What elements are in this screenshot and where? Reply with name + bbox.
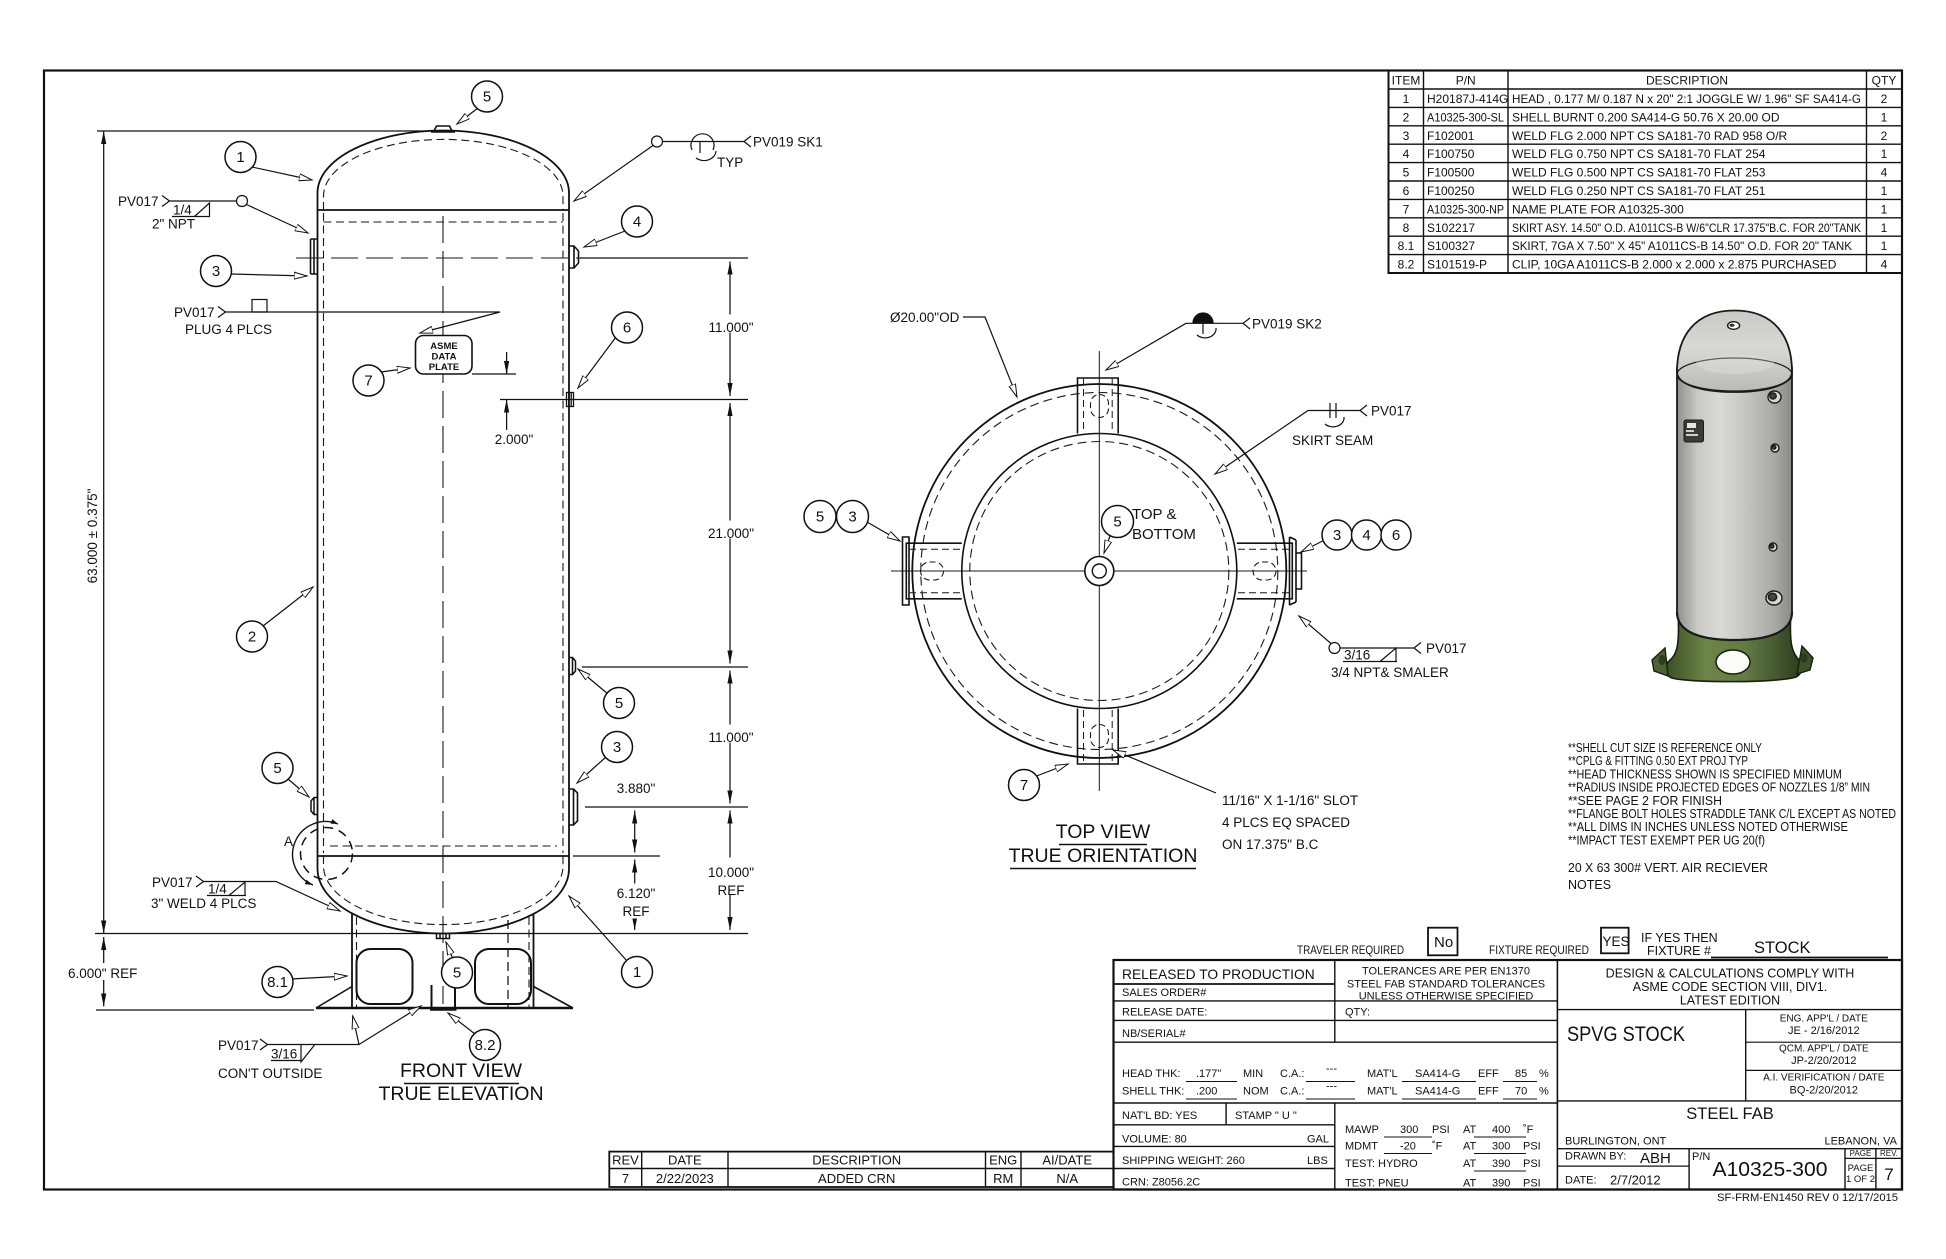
svg-text:MAT'L: MAT'L: [1367, 1068, 1398, 1080]
svg-text:S102217: S102217: [1427, 221, 1475, 235]
svg-text:6: 6: [1392, 527, 1400, 544]
svg-text:1 OF 2: 1 OF 2: [1846, 1174, 1875, 1185]
svg-text:**SEE PAGE 2 FOR FINISH: **SEE PAGE 2 FOR FINISH: [1568, 794, 1722, 808]
svg-text:70: 70: [1515, 1086, 1527, 1098]
svg-text:VOLUME: 80: VOLUME: 80: [1122, 1134, 1187, 1146]
svg-text:2: 2: [1881, 92, 1888, 106]
svg-text:300: 300: [1492, 1141, 1510, 1153]
svg-text:1/4: 1/4: [208, 882, 227, 897]
svg-text:SA414-G: SA414-G: [1415, 1086, 1460, 1098]
svg-text:PV019 SK1: PV019 SK1: [753, 135, 823, 150]
svg-text:NAT'L BD: YES: NAT'L BD: YES: [1122, 1110, 1197, 1122]
svg-text:S101519-P: S101519-P: [1427, 258, 1487, 272]
svg-text:PLUG 4 PLCS: PLUG 4 PLCS: [185, 322, 272, 337]
svg-text:11.000": 11.000": [708, 730, 753, 745]
svg-text:No: No: [1434, 934, 1453, 951]
svg-text:4: 4: [633, 214, 641, 231]
svg-text:REF: REF: [718, 883, 745, 898]
svg-text:SPVG STOCK: SPVG STOCK: [1567, 1023, 1685, 1046]
svg-text:**RADIUS INSIDE PROJECTED EDGE: **RADIUS INSIDE PROJECTED EDGES OF NOZZL…: [1568, 781, 1870, 795]
svg-text:ABH: ABH: [1640, 1150, 1671, 1167]
svg-text:SHELL BURNT 0.200 SA414-G 50.7: SHELL BURNT 0.200 SA414-G 50.76 X 20.00 …: [1512, 110, 1780, 124]
svg-text:SHELL THK:: SHELL THK:: [1122, 1086, 1184, 1098]
svg-text:N/A: N/A: [1056, 1171, 1078, 1186]
svg-text:390: 390: [1492, 1178, 1510, 1190]
svg-text:3: 3: [212, 263, 220, 280]
svg-text:TRUE ELEVATION: TRUE ELEVATION: [378, 1083, 543, 1105]
svg-text:**CPLG & FITTING 0.50 EXT PROJ: **CPLG & FITTING 0.50 EXT PROJ TYP: [1568, 754, 1748, 768]
svg-text:.177": .177": [1196, 1068, 1221, 1080]
svg-text:FRONT VIEW: FRONT VIEW: [400, 1060, 523, 1082]
svg-text:NOTES: NOTES: [1568, 878, 1611, 892]
svg-text:6: 6: [623, 320, 631, 337]
svg-text:CLIP, 10GA A1011CS-B 2.000 x 2: CLIP, 10GA A1011CS-B 2.000 x 2.000 x 2.8…: [1512, 258, 1837, 272]
svg-text:7: 7: [1403, 202, 1410, 216]
svg-text:4: 4: [1362, 527, 1370, 544]
svg-text:7: 7: [1020, 777, 1028, 794]
svg-text:3: 3: [1403, 129, 1410, 143]
svg-text:F100500: F100500: [1427, 166, 1475, 180]
svg-text:MAT'L: MAT'L: [1367, 1086, 1398, 1098]
svg-text:GAL: GAL: [1307, 1134, 1329, 1146]
svg-text:F100750: F100750: [1427, 147, 1475, 161]
svg-text:A.I. VERIFICATION / DATE: A.I. VERIFICATION / DATE: [1763, 1073, 1885, 1084]
svg-text:PV017: PV017: [174, 305, 215, 320]
svg-text:IF YES THEN: IF YES THEN: [1641, 931, 1718, 945]
svg-text:8.1: 8.1: [267, 974, 288, 991]
svg-text:LATEST EDITION: LATEST EDITION: [1680, 994, 1780, 1008]
svg-text:PLATE: PLATE: [429, 362, 459, 373]
svg-text:DESIGN & CALCULATIONS COMPLY W: DESIGN & CALCULATIONS COMPLY WITH: [1606, 967, 1855, 981]
svg-text:˚F: ˚F: [1432, 1141, 1443, 1153]
svg-text:3: 3: [613, 739, 621, 756]
svg-text:8.1: 8.1: [1398, 239, 1415, 253]
svg-text:10.000": 10.000": [708, 865, 754, 880]
svg-text:˚F: ˚F: [1523, 1124, 1534, 1136]
svg-text:**ALL DIMS IN INCHES UNLESS NO: **ALL DIMS IN INCHES UNLESS NOTED OTHERW…: [1568, 820, 1848, 834]
svg-text:85: 85: [1515, 1068, 1527, 1080]
svg-text:1: 1: [1881, 239, 1888, 253]
svg-text:SKIRT SEAM: SKIRT SEAM: [1292, 433, 1373, 448]
svg-text:ENG: ENG: [989, 1153, 1017, 1168]
svg-text:TOLERANCES ARE PER EN1370: TOLERANCES ARE PER EN1370: [1362, 966, 1530, 978]
svg-text:2.000": 2.000": [495, 432, 534, 447]
svg-text:STEEL FAB STANDARD TOLERANCES: STEEL FAB STANDARD TOLERANCES: [1347, 979, 1545, 991]
svg-text:MAWP: MAWP: [1345, 1124, 1379, 1136]
svg-text:ITEM: ITEM: [1392, 74, 1421, 88]
svg-text:1: 1: [1881, 221, 1888, 235]
svg-text:EFF: EFF: [1478, 1086, 1499, 1098]
svg-text:SA414-G: SA414-G: [1415, 1068, 1460, 1080]
svg-text:HEAD , 0.177 M/ 0.187 N x 20": HEAD , 0.177 M/ 0.187 N x 20" 2:1 JOGGLE…: [1512, 92, 1861, 106]
svg-text:3/16: 3/16: [1344, 648, 1370, 663]
svg-text:RELEASED TO PRODUCTION: RELEASED TO PRODUCTION: [1122, 967, 1315, 982]
svg-text:ENG. APP'L / DATE: ENG. APP'L / DATE: [1780, 1014, 1868, 1025]
svg-text:EFF: EFF: [1478, 1068, 1499, 1080]
svg-text:4: 4: [1881, 258, 1888, 272]
svg-text:RM: RM: [993, 1171, 1013, 1186]
svg-text:3.880": 3.880": [617, 781, 656, 796]
svg-text:PSI: PSI: [1523, 1158, 1541, 1170]
svg-text:21.000": 21.000": [708, 526, 754, 541]
svg-text:REV.: REV.: [1880, 1149, 1898, 1158]
svg-text:Ø20.00"OD: Ø20.00"OD: [890, 310, 960, 325]
svg-text:1: 1: [1881, 147, 1888, 161]
svg-text:F100250: F100250: [1427, 184, 1475, 198]
svg-text:2" NPT: 2" NPT: [152, 217, 195, 232]
svg-text:WELD FLG 0.250 NPT CS SA181-70: WELD FLG 0.250 NPT CS SA181-70 FLAT 251: [1512, 184, 1766, 198]
svg-text:AT: AT: [1463, 1141, 1477, 1153]
svg-text:YES: YES: [1603, 934, 1630, 949]
svg-text:C.A.:: C.A.:: [1280, 1068, 1304, 1080]
svg-text:%: %: [1539, 1086, 1549, 1098]
svg-text:UNLESS OTHERWISE SPECIFIED: UNLESS OTHERWISE SPECIFIED: [1359, 991, 1534, 1003]
svg-text:DESCRIPTION: DESCRIPTION: [1646, 74, 1728, 88]
svg-text:H20187J-414G: H20187J-414G: [1427, 92, 1508, 106]
svg-text:SF-FRM-EN1450 REV 0 12/17/201: SF-FRM-EN1450 REV 0 12/17/2015: [1717, 1192, 1898, 1204]
svg-text:DESCRIPTION: DESCRIPTION: [812, 1153, 901, 1168]
svg-text:3/16: 3/16: [271, 1047, 297, 1062]
svg-text:3: 3: [1333, 527, 1341, 544]
svg-text:WELD FLG 0.750 NPT CS SA181-70: WELD FLG 0.750 NPT CS SA181-70 FLAT 254: [1512, 147, 1766, 161]
svg-text:AT: AT: [1463, 1124, 1477, 1136]
svg-text:DRAWN BY:: DRAWN BY:: [1565, 1151, 1626, 1163]
svg-text:SHIPPING WEIGHT: 260: SHIPPING WEIGHT: 260: [1122, 1155, 1245, 1167]
svg-text:7: 7: [1884, 1165, 1893, 1184]
svg-text:PSI: PSI: [1523, 1141, 1541, 1153]
svg-text:390: 390: [1492, 1158, 1510, 1170]
svg-text:WELD FLG 2.000 NPT CS SA181-70: WELD FLG 2.000 NPT CS SA181-70 RAD 958 O…: [1512, 129, 1788, 143]
svg-text:7: 7: [364, 373, 372, 390]
svg-text:2/22/2023: 2/22/2023: [656, 1171, 714, 1186]
svg-text:A10325-300-SL: A10325-300-SL: [1427, 110, 1504, 124]
svg-text:5: 5: [615, 695, 623, 712]
svg-text:6.120": 6.120": [617, 886, 656, 901]
svg-text:2: 2: [1403, 110, 1410, 124]
svg-text:PV017: PV017: [1426, 641, 1467, 656]
svg-text:2/7/2012: 2/7/2012: [1610, 1173, 1661, 1188]
svg-text:A10325-300: A10325-300: [1713, 1158, 1828, 1181]
svg-text:DATA: DATA: [432, 352, 457, 363]
svg-text:F102001: F102001: [1427, 129, 1475, 143]
svg-text:DATE:: DATE:: [1565, 1175, 1597, 1187]
svg-text:REF: REF: [623, 904, 650, 919]
svg-text:1: 1: [236, 149, 244, 166]
svg-text:8.2: 8.2: [475, 1037, 496, 1054]
svg-text:PV019 SK2: PV019 SK2: [1252, 317, 1322, 332]
svg-text:NAME PLATE FOR A10325-300: NAME PLATE FOR A10325-300: [1512, 202, 1684, 216]
svg-text:3: 3: [848, 509, 856, 526]
svg-text:NOM: NOM: [1243, 1086, 1269, 1098]
svg-text:PV017: PV017: [118, 194, 159, 209]
svg-text:**HEAD THICKNESS SHOWN IS SPEC: **HEAD THICKNESS SHOWN IS SPECIFIED MINI…: [1568, 767, 1842, 781]
svg-text:TOP VIEW: TOP VIEW: [1056, 821, 1151, 843]
svg-text:SKIRT ASY. 14.50" O.D. A1011CS: SKIRT ASY. 14.50" O.D. A1011CS-B W/6"CLR…: [1512, 221, 1861, 235]
svg-text:2: 2: [248, 629, 256, 646]
svg-text:A10325-300-NP: A10325-300-NP: [1427, 202, 1504, 216]
svg-text:WELD FLG 0.500 NPT CS SA181-70: WELD FLG 0.500 NPT CS SA181-70 FLAT 253: [1512, 166, 1766, 180]
svg-text:PAGE: PAGE: [1848, 1163, 1874, 1174]
svg-text:CON'T OUTSIDE: CON'T OUTSIDE: [218, 1066, 322, 1081]
svg-text:SALES ORDER#: SALES ORDER#: [1122, 987, 1207, 999]
svg-text:AI/DATE: AI/DATE: [1042, 1153, 1092, 1168]
svg-text:---: ---: [1326, 1063, 1337, 1075]
svg-text:TEST: HYDRO: TEST: HYDRO: [1345, 1158, 1418, 1170]
svg-text:1: 1: [633, 964, 641, 981]
svg-text:7: 7: [622, 1171, 629, 1186]
svg-text:TRAVELER REQUIRED: TRAVELER REQUIRED: [1297, 943, 1404, 957]
svg-text:PV017: PV017: [218, 1038, 259, 1053]
svg-text:3/4 NPT& SMALER: 3/4 NPT& SMALER: [1331, 665, 1449, 680]
svg-text:1/4: 1/4: [173, 203, 192, 218]
svg-text:.200: .200: [1196, 1086, 1217, 1098]
svg-text:ADDED CRN: ADDED CRN: [818, 1171, 895, 1186]
svg-text:PAGE: PAGE: [1850, 1149, 1872, 1158]
svg-text:PSI: PSI: [1432, 1124, 1450, 1136]
svg-text:JP-2/20/2012: JP-2/20/2012: [1791, 1055, 1856, 1067]
svg-text:A: A: [284, 834, 293, 849]
svg-text:AT: AT: [1463, 1158, 1477, 1170]
svg-text:JE - 2/16/2012: JE - 2/16/2012: [1788, 1025, 1860, 1037]
svg-text:5: 5: [453, 965, 461, 982]
svg-text:BQ-2/20/2012: BQ-2/20/2012: [1790, 1085, 1859, 1097]
svg-text:11.000": 11.000": [708, 320, 753, 335]
svg-text:STEEL FAB: STEEL FAB: [1686, 1105, 1773, 1123]
svg-text:1: 1: [1403, 92, 1410, 106]
svg-text:ON 17.375" B.C: ON 17.375" B.C: [1222, 837, 1319, 852]
svg-text:2: 2: [1881, 129, 1888, 143]
svg-text:3" WELD 4 PLCS: 3" WELD 4 PLCS: [151, 896, 256, 911]
svg-text:S100327: S100327: [1427, 239, 1475, 253]
svg-text:QTY: QTY: [1872, 74, 1897, 88]
svg-text:STOCK: STOCK: [1754, 939, 1811, 957]
svg-text:5: 5: [273, 760, 281, 777]
svg-text:-20: -20: [1400, 1141, 1416, 1153]
svg-text:300: 300: [1400, 1124, 1418, 1136]
svg-text:4 PLCS EQ SPACED: 4 PLCS EQ SPACED: [1222, 815, 1350, 830]
svg-text:QTY:: QTY:: [1345, 1007, 1370, 1019]
svg-text:MIN: MIN: [1243, 1068, 1263, 1080]
svg-text:PV017: PV017: [152, 875, 193, 890]
svg-text:63.000 ± 0.375": 63.000 ± 0.375": [85, 488, 100, 583]
svg-text:6: 6: [1403, 184, 1410, 198]
svg-text:4: 4: [1881, 166, 1888, 180]
svg-text:400: 400: [1492, 1124, 1510, 1136]
svg-text:NB/SERIAL#: NB/SERIAL#: [1122, 1028, 1186, 1040]
svg-text:8: 8: [1403, 221, 1410, 235]
svg-text:LEBANON, VA: LEBANON, VA: [1824, 1136, 1897, 1148]
svg-text:C.A.:: C.A.:: [1280, 1086, 1304, 1098]
svg-text:MDMT: MDMT: [1345, 1141, 1378, 1153]
svg-text:TYP: TYP: [717, 155, 743, 170]
svg-text:FIXTURE #: FIXTURE #: [1647, 944, 1711, 958]
svg-text:8.2: 8.2: [1398, 258, 1415, 272]
svg-text:SKIRT, 7GA X 7.50" X 45" A1011: SKIRT, 7GA X 7.50" X 45" A1011CS-B 14.50…: [1512, 239, 1852, 253]
svg-text:ASME CODE SECTION VIII, DIV1.: ASME CODE SECTION VIII, DIV1.: [1633, 980, 1827, 994]
svg-text:1: 1: [1881, 202, 1888, 216]
svg-text:TOP &: TOP &: [1132, 506, 1176, 523]
svg-text:LBS: LBS: [1307, 1155, 1328, 1167]
svg-text:PV017: PV017: [1371, 404, 1412, 419]
svg-text:FIXTURE REQUIRED: FIXTURE REQUIRED: [1489, 943, 1589, 957]
svg-text:%: %: [1539, 1068, 1549, 1080]
svg-text:TRUE ORIENTATION: TRUE ORIENTATION: [1009, 845, 1198, 867]
svg-text:20 X 63 300# VERT. AIR RECIEVE: 20 X 63 300# VERT. AIR RECIEVER: [1568, 861, 1768, 875]
svg-text:1: 1: [1881, 110, 1888, 124]
svg-text:BURLINGTON, ONT: BURLINGTON, ONT: [1565, 1136, 1667, 1148]
svg-text:TEST: PNEU: TEST: PNEU: [1345, 1178, 1409, 1190]
svg-text:STAMP " U ": STAMP " U ": [1235, 1110, 1297, 1122]
svg-text:---: ---: [1326, 1081, 1337, 1093]
svg-text:P/N: P/N: [1692, 1151, 1710, 1163]
svg-text:ASME: ASME: [430, 341, 457, 352]
svg-text:**FLANGE BOLT HOLES STRADDLE T: **FLANGE BOLT HOLES STRADDLE TANK C/L EX…: [1568, 807, 1896, 821]
svg-text:6.000" REF: 6.000" REF: [68, 966, 137, 981]
svg-text:11/16" X 1-1/16" SLOT: 11/16" X 1-1/16" SLOT: [1222, 793, 1358, 808]
svg-text:5: 5: [816, 509, 824, 526]
svg-text:PSI: PSI: [1523, 1178, 1541, 1190]
svg-text:**SHELL CUT SIZE IS REFERENCE: **SHELL CUT SIZE IS REFERENCE ONLY: [1568, 741, 1763, 755]
svg-text:**IMPACT TEST EXEMPT PER UG 20: **IMPACT TEST EXEMPT PER UG 20(f): [1568, 833, 1765, 847]
svg-text:REV: REV: [612, 1153, 639, 1168]
svg-text:1: 1: [1881, 184, 1888, 198]
svg-text:5: 5: [483, 89, 491, 106]
svg-text:QCM. APP'L / DATE: QCM. APP'L / DATE: [1779, 1044, 1869, 1055]
svg-text:CRN: Z8056.2C: CRN: Z8056.2C: [1122, 1177, 1200, 1189]
svg-text:BOTTOM: BOTTOM: [1132, 526, 1196, 543]
svg-text:HEAD THK:: HEAD THK:: [1122, 1068, 1180, 1080]
svg-text:DATE: DATE: [668, 1153, 702, 1168]
svg-text:AT: AT: [1463, 1178, 1477, 1190]
svg-text:5: 5: [1403, 166, 1410, 180]
svg-text:RELEASE DATE:: RELEASE DATE:: [1122, 1007, 1207, 1019]
svg-text:P/N: P/N: [1456, 74, 1476, 88]
svg-text:4: 4: [1403, 147, 1410, 161]
svg-text:5: 5: [1113, 514, 1121, 531]
